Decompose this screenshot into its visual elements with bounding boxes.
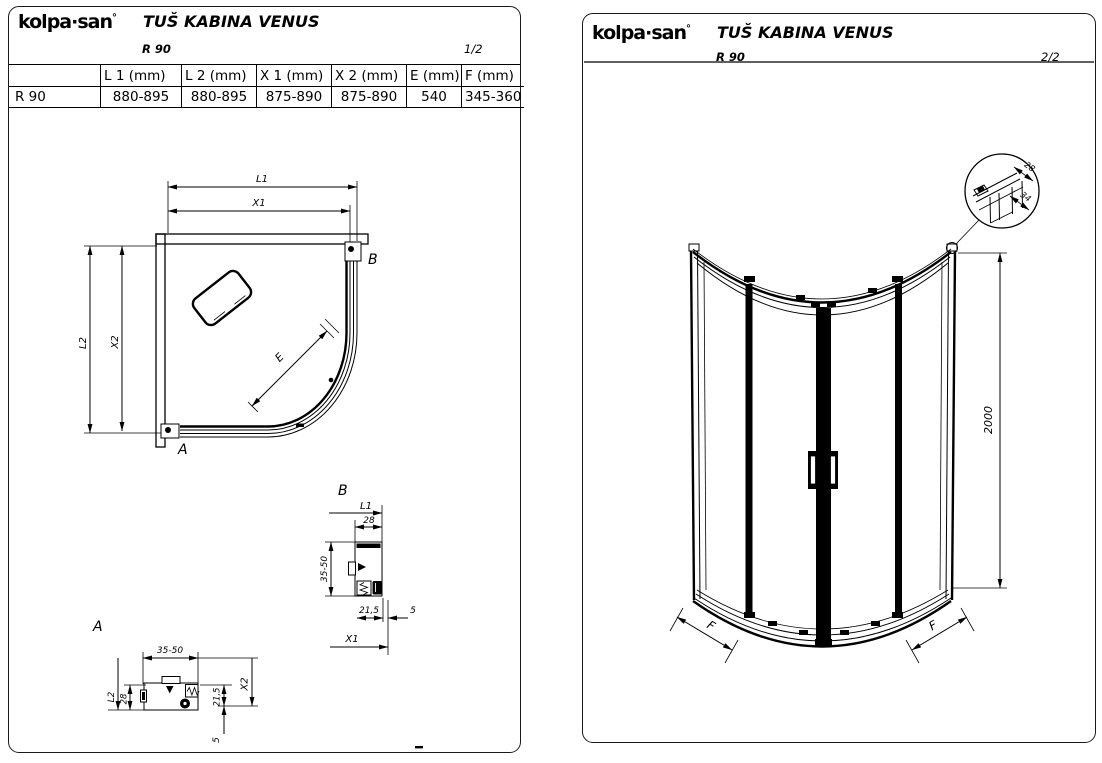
kolpa-san-logo: kolpa·san° [18,11,117,33]
table-header-cell: E (mm) [406,65,461,87]
table-header-cell: X 2 (mm) [331,65,406,87]
table-cell-e: 540 [406,87,461,108]
table-header-cell: L 1 (mm) [100,65,181,87]
page-title: TUŠ KABINA VENUS [717,23,894,42]
page-title: TUŠ KABINA VENUS [143,12,320,31]
model-label: R 90 [716,50,745,64]
table-cell-model: R 90 [9,87,100,108]
table-cell-l1: 880-895 [100,87,181,108]
model-label: R 90 [142,42,171,56]
logo-trademark: ° [686,24,691,35]
logo-text: kolpa·san [18,11,112,33]
table-header-cell: L 2 (mm) [181,65,256,87]
datasheet-page-2: kolpa·san° TUŠ KABINA VENUS R 90 2/2 [582,13,1096,743]
table-header-cell [9,65,100,87]
table-cell-f: 345-360 [461,87,524,108]
page-number: 2/2 [1041,50,1060,64]
page-number: 1/2 [464,42,483,56]
table-header-cell: X 1 (mm) [256,65,331,87]
table-cell-x2: 875-890 [331,87,406,108]
logo-text: kolpa·san [592,22,686,44]
logo-trademark: ° [112,13,117,24]
datasheet-page-1: kolpa·san° TUŠ KABINA VENUS R 90 1/2 L 1… [8,6,521,753]
table-cell-x1: 875-890 [256,87,331,108]
dimension-table: L 1 (mm) L 2 (mm) X 1 (mm) X 2 (mm) E (m… [9,64,520,108]
table-cell-l2: 880-895 [181,87,256,108]
table-header-cell: F (mm) [461,65,524,87]
kolpa-san-logo: kolpa·san° [592,22,691,44]
